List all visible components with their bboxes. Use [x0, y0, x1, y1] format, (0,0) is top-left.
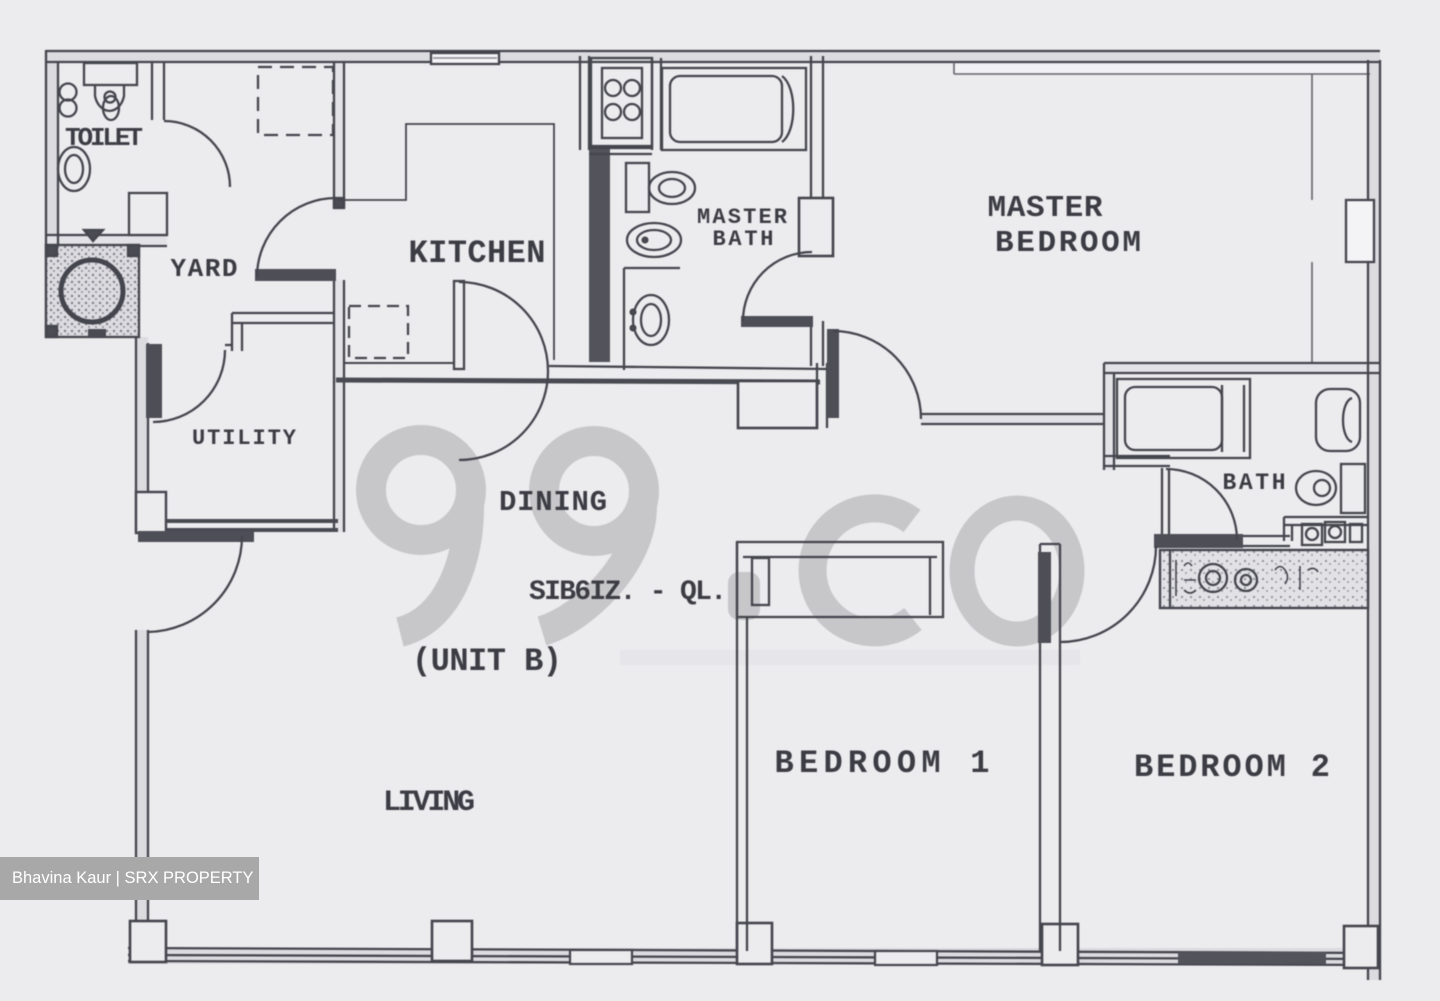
svg-text:(UNIT B): (UNIT B)	[412, 643, 562, 680]
svg-text:BEDROOM 1: BEDROOM 1	[775, 745, 990, 782]
svg-text:SIB6IZ. - QL.: SIB6IZ. - QL.	[529, 577, 727, 608]
svg-text:YARD: YARD	[171, 254, 238, 284]
svg-text:BEDROOM 2: BEDROOM 2	[1134, 749, 1330, 786]
svg-text:KITCHEN: KITCHEN	[409, 235, 546, 272]
svg-text:LIVING: LIVING	[383, 786, 475, 820]
svg-text:BEDROOM: BEDROOM	[995, 226, 1141, 261]
svg-text:TOILET: TOILET	[65, 123, 143, 153]
svg-text:DINING: DINING	[499, 486, 607, 519]
svg-text:MASTER: MASTER	[988, 191, 1103, 226]
